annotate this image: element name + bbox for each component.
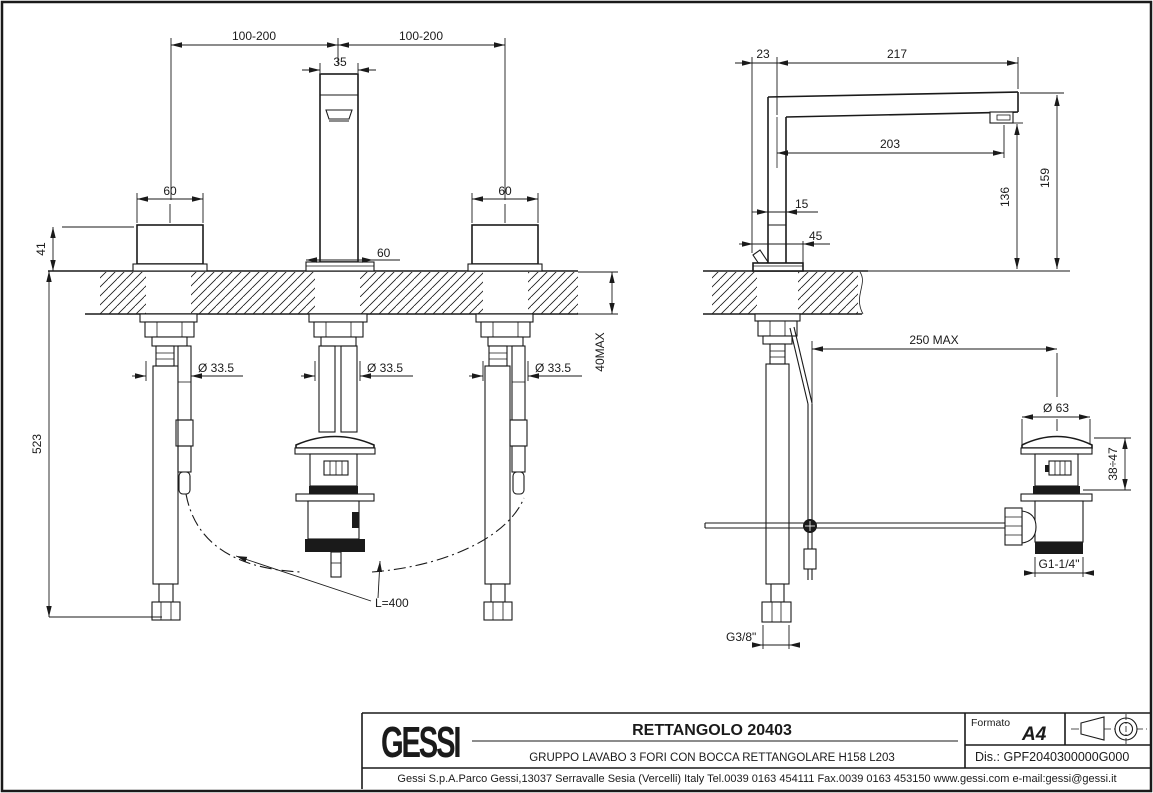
flex-hoses-left: [152, 346, 193, 620]
dim-hole-dia-right: Ø 33.5: [535, 361, 571, 375]
format-value: A4: [1021, 724, 1047, 745]
page-border: [2, 2, 1151, 791]
dim-spout-reach-aerator: 203: [880, 137, 900, 151]
dim-spread-right: 100-200: [399, 29, 443, 43]
front-view: 100-200 100-200 35 60 60 41 60: [30, 29, 618, 620]
hose-sweep-arc-left: [186, 494, 300, 572]
company-footer: Gessi S.p.A.Parco Gessi,13037 Serravalle…: [397, 773, 1116, 785]
dim-aerator-height: 136: [998, 187, 1012, 207]
dim-hose-length: L=400: [375, 596, 409, 610]
dim-counter-thickness: 40MAX: [593, 332, 607, 371]
flex-hoses-right: [484, 346, 527, 620]
dim-spout-width: 35: [333, 55, 347, 69]
hose-sweep-arc-right: [372, 498, 524, 572]
dim-spout-height: 159: [1038, 168, 1052, 188]
dim-supply-thread: G3/8": [726, 630, 756, 644]
dim-drain-adjust-range: 38÷47: [1106, 447, 1120, 481]
dim-handle-height: 41: [34, 242, 48, 256]
popup-drain-side: [1005, 437, 1092, 555]
product-description: GRUPPO LAVABO 3 FORI CON BOCCA RETTANGOL…: [529, 752, 895, 764]
center-hoses: [319, 346, 357, 432]
dim-drain-thread: G1-1/4": [1039, 557, 1080, 571]
drawing-sheet: 100-200 100-200 35 60 60 41 60: [0, 0, 1153, 793]
flex-hose-side: [762, 344, 791, 622]
dim-spout-base-width: 60: [377, 246, 391, 260]
counter-hatch: [100, 272, 146, 314]
format-label: Formato: [971, 717, 1010, 729]
dim-drain-cap-dia: Ø 63: [1043, 401, 1069, 415]
dim-drain-rod-reach: 250 MAX: [909, 333, 958, 347]
product-title: RETTANGOLO 20403: [632, 722, 792, 739]
dim-base-depth: 45: [809, 229, 823, 243]
projection-symbol-icon: [1071, 714, 1147, 744]
popup-rod-linkage: [705, 327, 1008, 580]
dim-spread-left: 100-200: [232, 29, 276, 43]
faucet-side: [753, 92, 1018, 344]
dim-hole-dia-left: Ø 33.5: [198, 361, 234, 375]
dim-total-depth: 523: [30, 434, 44, 454]
dim-body-width: 15: [795, 197, 809, 211]
popup-drain-front: [295, 437, 375, 578]
dim-hole-dia-center: Ø 33.5: [367, 361, 403, 375]
brand-logo: GESSI: [381, 717, 460, 766]
technical-drawing: 100-200 100-200 35 60 60 41 60: [0, 0, 1153, 793]
dim-spout-reach-total: 217: [887, 47, 907, 61]
title-block: GESSI RETTANGOLO 20403 GRUPPO LAVABO 3 F…: [362, 713, 1151, 789]
side-view: 23 217 203 15 45 136 159 250 MAX: [703, 47, 1131, 649]
drawing-code: Dis.: GPF2040300000G000: [975, 750, 1129, 764]
dim-body-offset: 23: [756, 47, 770, 61]
dim-handle-width-right: 60: [498, 184, 512, 198]
dim-handle-width-left: 60: [163, 184, 177, 198]
counter-break-line: [859, 272, 863, 314]
